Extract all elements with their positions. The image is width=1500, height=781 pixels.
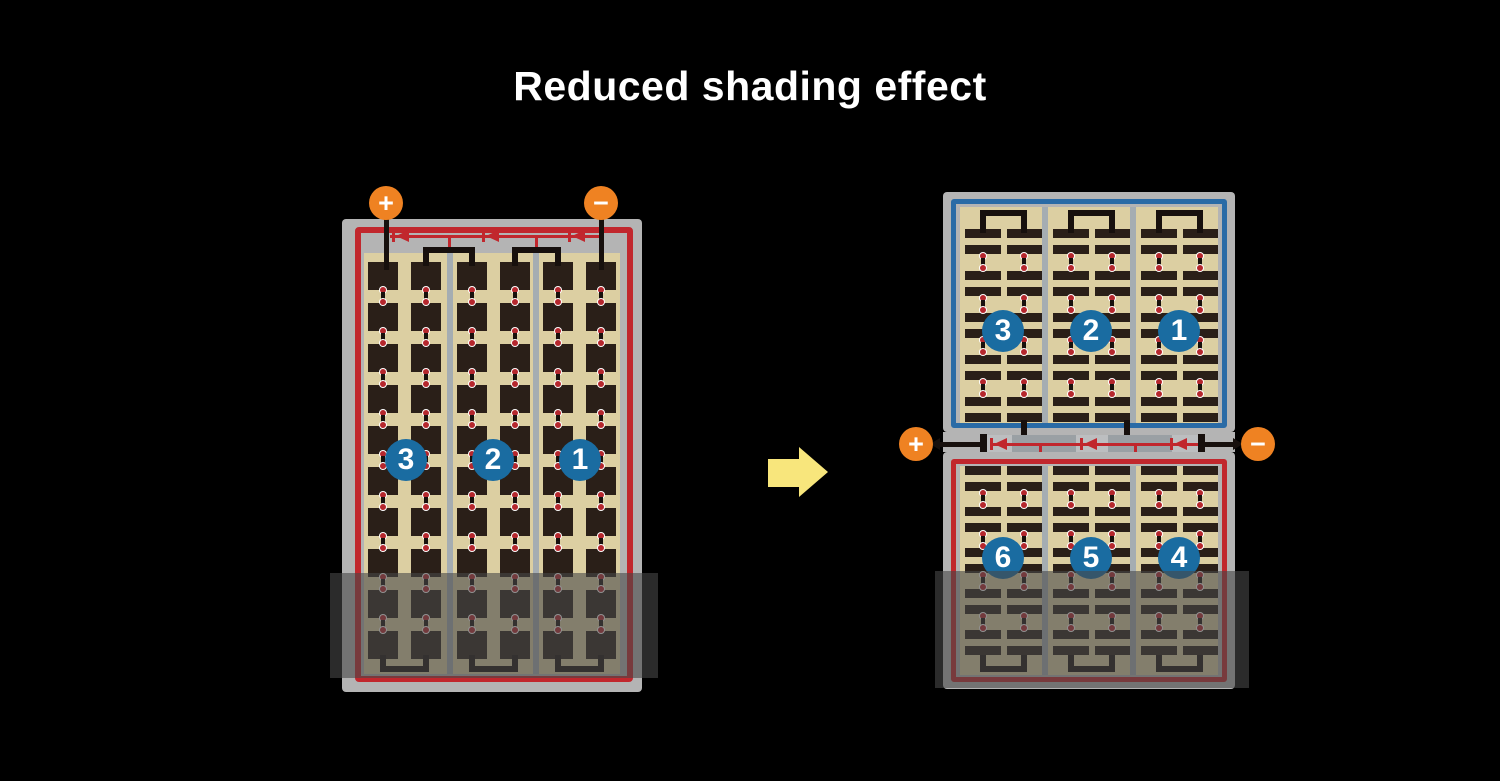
diode-cathode-bar xyxy=(568,230,571,242)
positive-terminal: + xyxy=(369,186,403,220)
diode-cathode-bar xyxy=(1080,438,1083,450)
diagram-title: Reduced shading effect xyxy=(0,63,1500,110)
diode-triangle-icon xyxy=(396,230,409,242)
series-wire-vertical xyxy=(469,247,475,266)
diode-cathode-bar xyxy=(392,230,395,242)
negative-terminal: − xyxy=(1241,427,1275,461)
string-number-badge: 2 xyxy=(472,439,514,481)
transform-arrow-body xyxy=(768,459,799,487)
string-number-badge: 3 xyxy=(982,310,1024,352)
diode-triangle-icon xyxy=(1174,438,1187,450)
string-number-badge: 2 xyxy=(1070,310,1112,352)
diode-triangle-icon xyxy=(572,230,585,242)
diode-cathode-bar xyxy=(1170,438,1173,450)
series-wire-horizontal xyxy=(512,247,561,253)
transform-arrow-icon xyxy=(799,447,828,497)
diagram-canvas: Reduced shading effect 321+−321+−654 xyxy=(0,0,1500,781)
series-wire-vertical xyxy=(555,247,561,266)
series-wire-vertical xyxy=(512,247,518,266)
shade-overlay-right xyxy=(935,571,1249,688)
diode-cathode-bar xyxy=(990,438,993,450)
string-number-badge: 3 xyxy=(385,439,427,481)
diode-triangle-icon xyxy=(486,230,499,242)
terminal-wire xyxy=(1204,442,1234,447)
junction-stub xyxy=(1124,420,1130,436)
diode-triangle-icon xyxy=(1084,438,1097,450)
terminal-wire xyxy=(939,442,981,447)
junction-stub xyxy=(1021,420,1027,436)
negative-terminal: − xyxy=(584,186,618,220)
string-number-badge: 1 xyxy=(559,439,601,481)
terminal-stem xyxy=(599,219,604,270)
diode-cathode-bar xyxy=(482,230,485,242)
diode-triangle-icon xyxy=(994,438,1007,450)
shade-overlay-left xyxy=(330,573,658,678)
terminal-stem xyxy=(384,219,389,270)
series-wire-horizontal xyxy=(423,247,475,253)
string-number-badge: 1 xyxy=(1158,310,1200,352)
positive-terminal: + xyxy=(899,427,933,461)
series-wire-vertical xyxy=(423,247,429,266)
